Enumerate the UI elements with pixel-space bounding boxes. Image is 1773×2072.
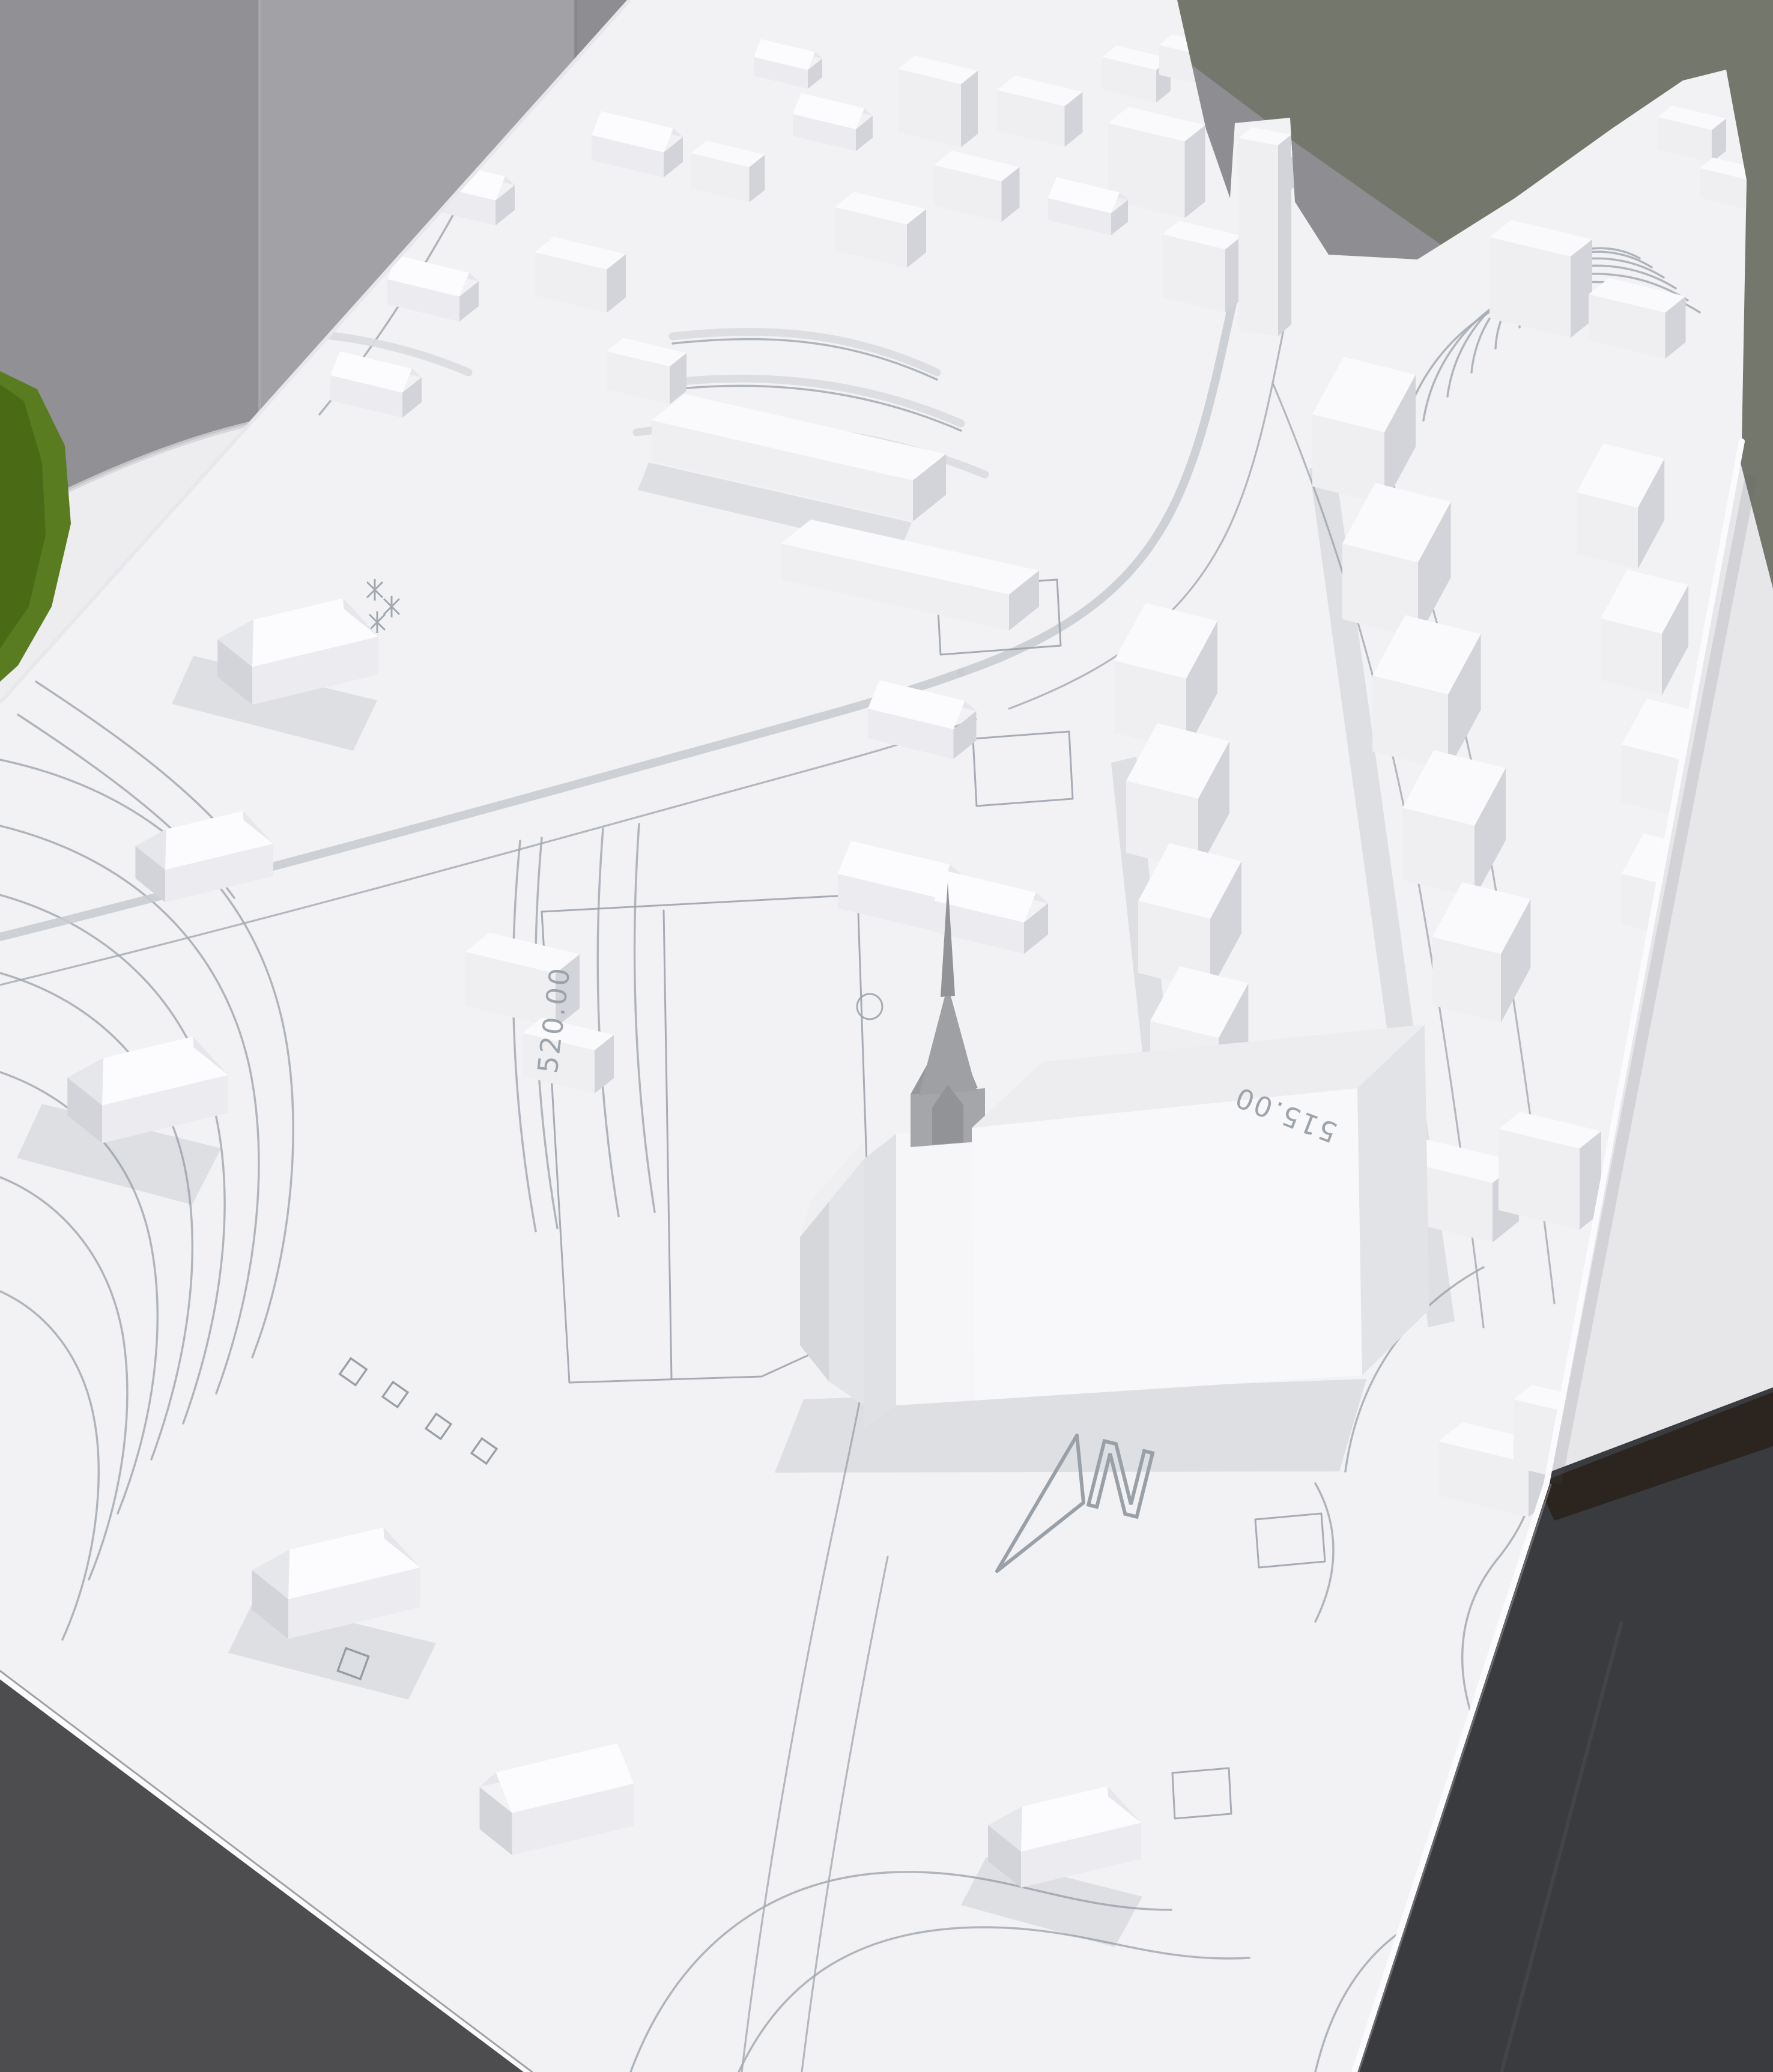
high-rise-block (1238, 127, 1291, 336)
church-nave (972, 1025, 1429, 1401)
architectural-model-photo: N 520.00 515.00 515.00 (0, 0, 1773, 2072)
church-tower (864, 1128, 974, 1429)
